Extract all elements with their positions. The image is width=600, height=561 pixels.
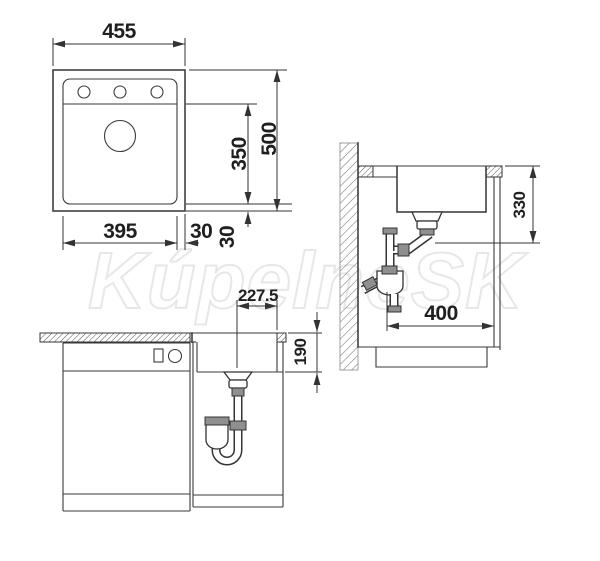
siphon-front [205, 372, 252, 461]
dim-label-330: 330 [510, 192, 529, 219]
left-cabinet [63, 343, 190, 511]
counter-cut-right [486, 166, 502, 177]
counter-hatch-right [277, 333, 286, 342]
dim-label-500: 500 [258, 122, 281, 156]
countertop-section [358, 166, 502, 177]
wall-section [340, 143, 358, 370]
drain-nut-front [232, 388, 244, 396]
drain-cup-front [229, 380, 247, 388]
sink-dimension-drawing: KúpelneSK 455 350 500 30 [0, 0, 600, 561]
countertop-front [40, 333, 286, 342]
outlet-end-nut [388, 306, 401, 312]
counter-hatch-left [40, 333, 190, 342]
trap-cup-side [377, 271, 403, 295]
dim-227-5: 227.5 [237, 286, 278, 368]
dim-label-30-vertical: 30 [216, 226, 239, 248]
drawer-symbol-circle [169, 350, 182, 363]
dim-label-455: 455 [102, 20, 136, 43]
dim-label-350: 350 [228, 137, 251, 171]
dim-label-395: 395 [103, 220, 137, 243]
technical-drawing-page: KúpelneSK 455 350 500 30 [0, 0, 600, 561]
tap-hole-left [78, 86, 90, 98]
drawer-symbol-square [154, 349, 163, 362]
pipe-nut [230, 421, 246, 430]
pipe-nut [382, 266, 397, 274]
trap-cap-nut [205, 417, 229, 425]
dim-label-400: 400 [424, 302, 458, 325]
drain-flange-front [224, 372, 252, 380]
dim-label-227-5: 227.5 [238, 286, 278, 305]
top-view: 455 350 500 30 395 30 [53, 20, 292, 250]
drain-flange-side [412, 212, 442, 221]
tap-hole-right [151, 86, 163, 98]
pipe-nut [398, 244, 409, 256]
tap-hole-center [114, 86, 126, 98]
drain-hole [105, 121, 136, 152]
cleanout-cap [383, 228, 397, 234]
drain-cup-side [417, 221, 437, 229]
drain-nut-side [420, 229, 434, 235]
dim-label-190: 190 [291, 339, 310, 366]
sink-outer-outline [53, 70, 185, 211]
bowl-section [397, 167, 486, 212]
trap-cup-front [206, 423, 228, 449]
watermark-text: KúpelneSK [88, 236, 528, 325]
counter-cut-left [358, 166, 373, 177]
dim-455: 455 [53, 20, 185, 66]
dim-label-30-horizontal: 30 [190, 220, 212, 243]
